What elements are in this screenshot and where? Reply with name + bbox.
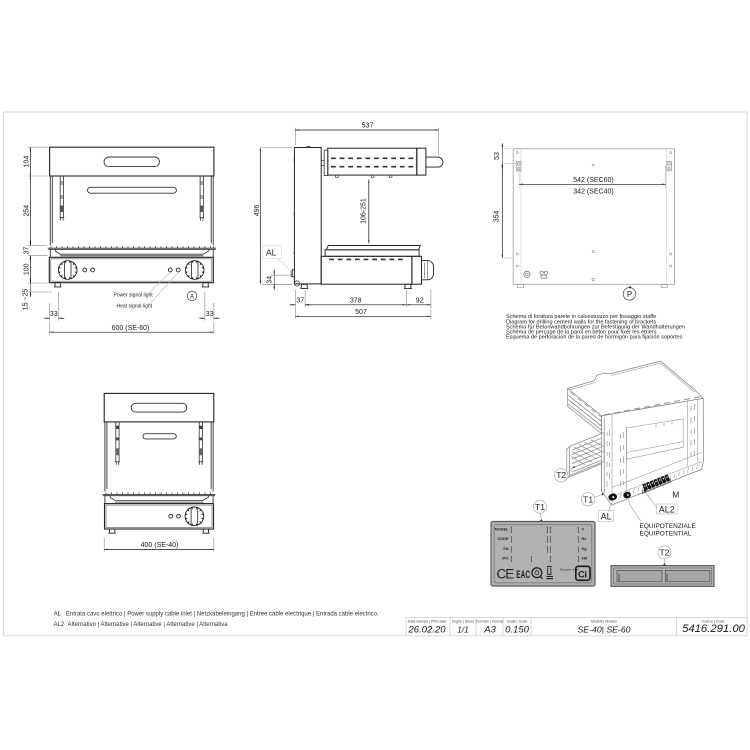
svg-text:53: 53 bbox=[494, 152, 501, 160]
svg-text:378: 378 bbox=[350, 297, 362, 304]
svg-text:[: [ bbox=[550, 555, 552, 562]
svg-text:Scala | Scale: Scala | Scale bbox=[507, 619, 528, 623]
svg-text:15 ~25: 15 ~25 bbox=[22, 289, 29, 311]
svg-text:SE-40| SE-60: SE-40| SE-60 bbox=[578, 625, 631, 635]
svg-text:AL Entrata cavo elettrico |: AL Entrata cavo elettrico | Power supply… bbox=[54, 612, 379, 618]
svg-text:Data stampa | Print date: Data stampa | Print date bbox=[408, 619, 447, 623]
svg-text:P: P bbox=[627, 290, 632, 299]
svg-text:106-251: 106-251 bbox=[361, 198, 368, 224]
svg-text:542 (SEC60): 542 (SEC60) bbox=[573, 177, 613, 184]
svg-text:Power signal light: Power signal light bbox=[114, 292, 154, 298]
svg-text:33: 33 bbox=[50, 311, 58, 318]
svg-text:507: 507 bbox=[355, 309, 367, 316]
svg-text:]: ] bbox=[547, 546, 549, 553]
svg-text:CE: CE bbox=[497, 567, 515, 582]
svg-text:33: 33 bbox=[206, 311, 214, 318]
svg-text:Foglio | Sheet: Foglio | Sheet bbox=[452, 619, 474, 623]
svg-text:[: [ bbox=[511, 555, 513, 562]
svg-text:34: 34 bbox=[267, 276, 274, 284]
svg-text:37: 37 bbox=[23, 247, 30, 255]
svg-text:EAC: EAC bbox=[516, 569, 530, 581]
svg-text:Hz: Hz bbox=[582, 537, 587, 541]
svg-text:600 (SE-60): 600 (SE-60) bbox=[112, 325, 150, 332]
svg-text:CODE: CODE bbox=[498, 537, 509, 541]
svg-text:Ci: Ci bbox=[578, 570, 587, 581]
svg-text:26.02.20: 26.02.20 bbox=[408, 625, 447, 636]
svg-text:AL: AL bbox=[266, 248, 277, 258]
svg-text:104: 104 bbox=[23, 156, 30, 168]
svg-text:]: ] bbox=[578, 555, 580, 562]
svg-text:Model: Model bbox=[617, 574, 621, 581]
svg-text:]: ] bbox=[547, 527, 549, 534]
svg-text:T1: T1 bbox=[583, 494, 593, 504]
svg-text:T1: T1 bbox=[535, 502, 545, 512]
svg-text:Heat signal light: Heat signal light bbox=[117, 304, 153, 310]
svg-text:T2: T2 bbox=[659, 547, 669, 557]
svg-text:IPX: IPX bbox=[502, 556, 509, 560]
svg-text:342 (SEC40): 342 (SEC40) bbox=[573, 189, 613, 196]
svg-text:5416.291.00: 5416.291.00 bbox=[682, 623, 746, 635]
svg-text:[: [ bbox=[511, 527, 513, 534]
svg-text:254: 254 bbox=[23, 205, 30, 217]
svg-text:[: [ bbox=[550, 527, 552, 534]
svg-text:Model: Model bbox=[665, 574, 669, 581]
svg-text:]: ] bbox=[578, 527, 580, 534]
svg-text:AL: AL bbox=[601, 512, 612, 522]
svg-text:Kg: Kg bbox=[582, 547, 588, 551]
svg-text:EQUIPOTENZIALE: EQUIPOTENZIALE bbox=[640, 523, 697, 530]
svg-text:92: 92 bbox=[416, 297, 424, 304]
svg-text:Esquema de perforacion de la p: Esquema de perforacion de la pared de ho… bbox=[506, 335, 683, 341]
svg-text:A3: A3 bbox=[483, 625, 496, 636]
svg-text:EQUIPOTENTIAL: EQUIPOTENTIAL bbox=[640, 530, 692, 537]
svg-text:]: ] bbox=[578, 546, 580, 553]
svg-text:]: ] bbox=[531, 555, 533, 562]
svg-text:AL2 Alternativo | Alternative: AL2 Alternativo | Alternative | Alternat… bbox=[54, 622, 229, 628]
svg-text:[: [ bbox=[511, 536, 513, 543]
svg-text:496: 496 bbox=[254, 204, 261, 216]
svg-text:354: 354 bbox=[494, 210, 501, 222]
svg-text:400 (SE-40): 400 (SE-40) bbox=[141, 542, 179, 549]
svg-text:]: ] bbox=[547, 536, 549, 543]
svg-text:Modelli | Models: Modelli | Models bbox=[591, 619, 617, 623]
svg-text:MODEL: MODEL bbox=[495, 528, 509, 532]
svg-text:[: [ bbox=[550, 536, 552, 543]
svg-text:M: M bbox=[672, 490, 679, 500]
svg-text:537: 537 bbox=[362, 122, 374, 129]
svg-text:T2: T2 bbox=[556, 470, 566, 480]
svg-text:]: ] bbox=[578, 536, 580, 543]
svg-text:kW: kW bbox=[582, 556, 588, 560]
svg-text:[: [ bbox=[550, 546, 552, 553]
svg-text:100: 100 bbox=[23, 263, 30, 275]
svg-text:37: 37 bbox=[296, 297, 304, 304]
svg-text:0.150: 0.150 bbox=[505, 625, 529, 636]
svg-text:[: [ bbox=[511, 546, 513, 553]
svg-text:Formato | Format: Formato | Format bbox=[476, 619, 504, 623]
svg-text:SN: SN bbox=[503, 547, 509, 551]
svg-text:AL2: AL2 bbox=[659, 504, 675, 514]
svg-text:1/1: 1/1 bbox=[457, 625, 469, 635]
